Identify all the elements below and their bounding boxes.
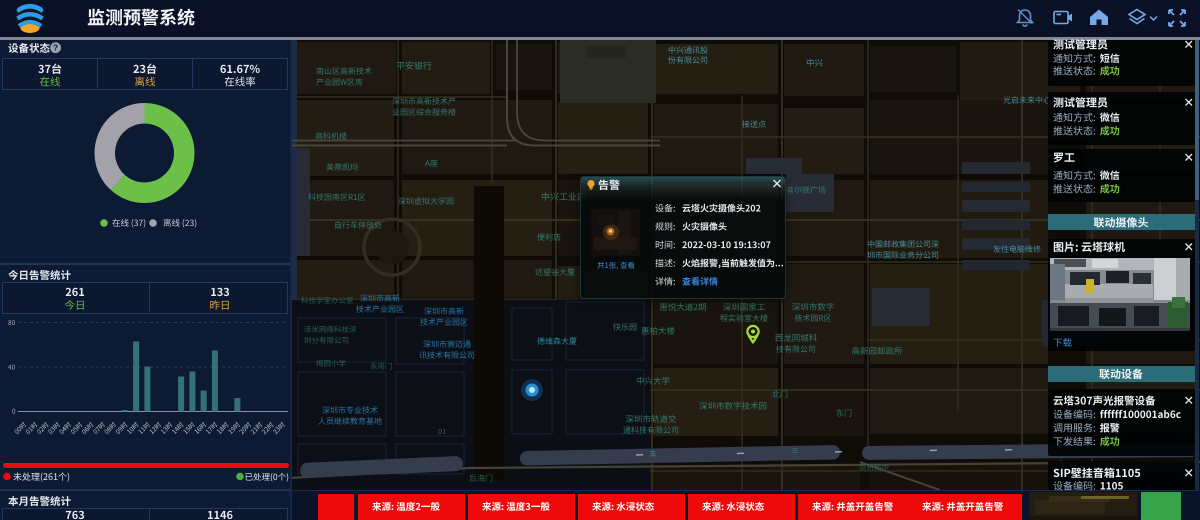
svg-text:?: ? xyxy=(53,43,58,53)
